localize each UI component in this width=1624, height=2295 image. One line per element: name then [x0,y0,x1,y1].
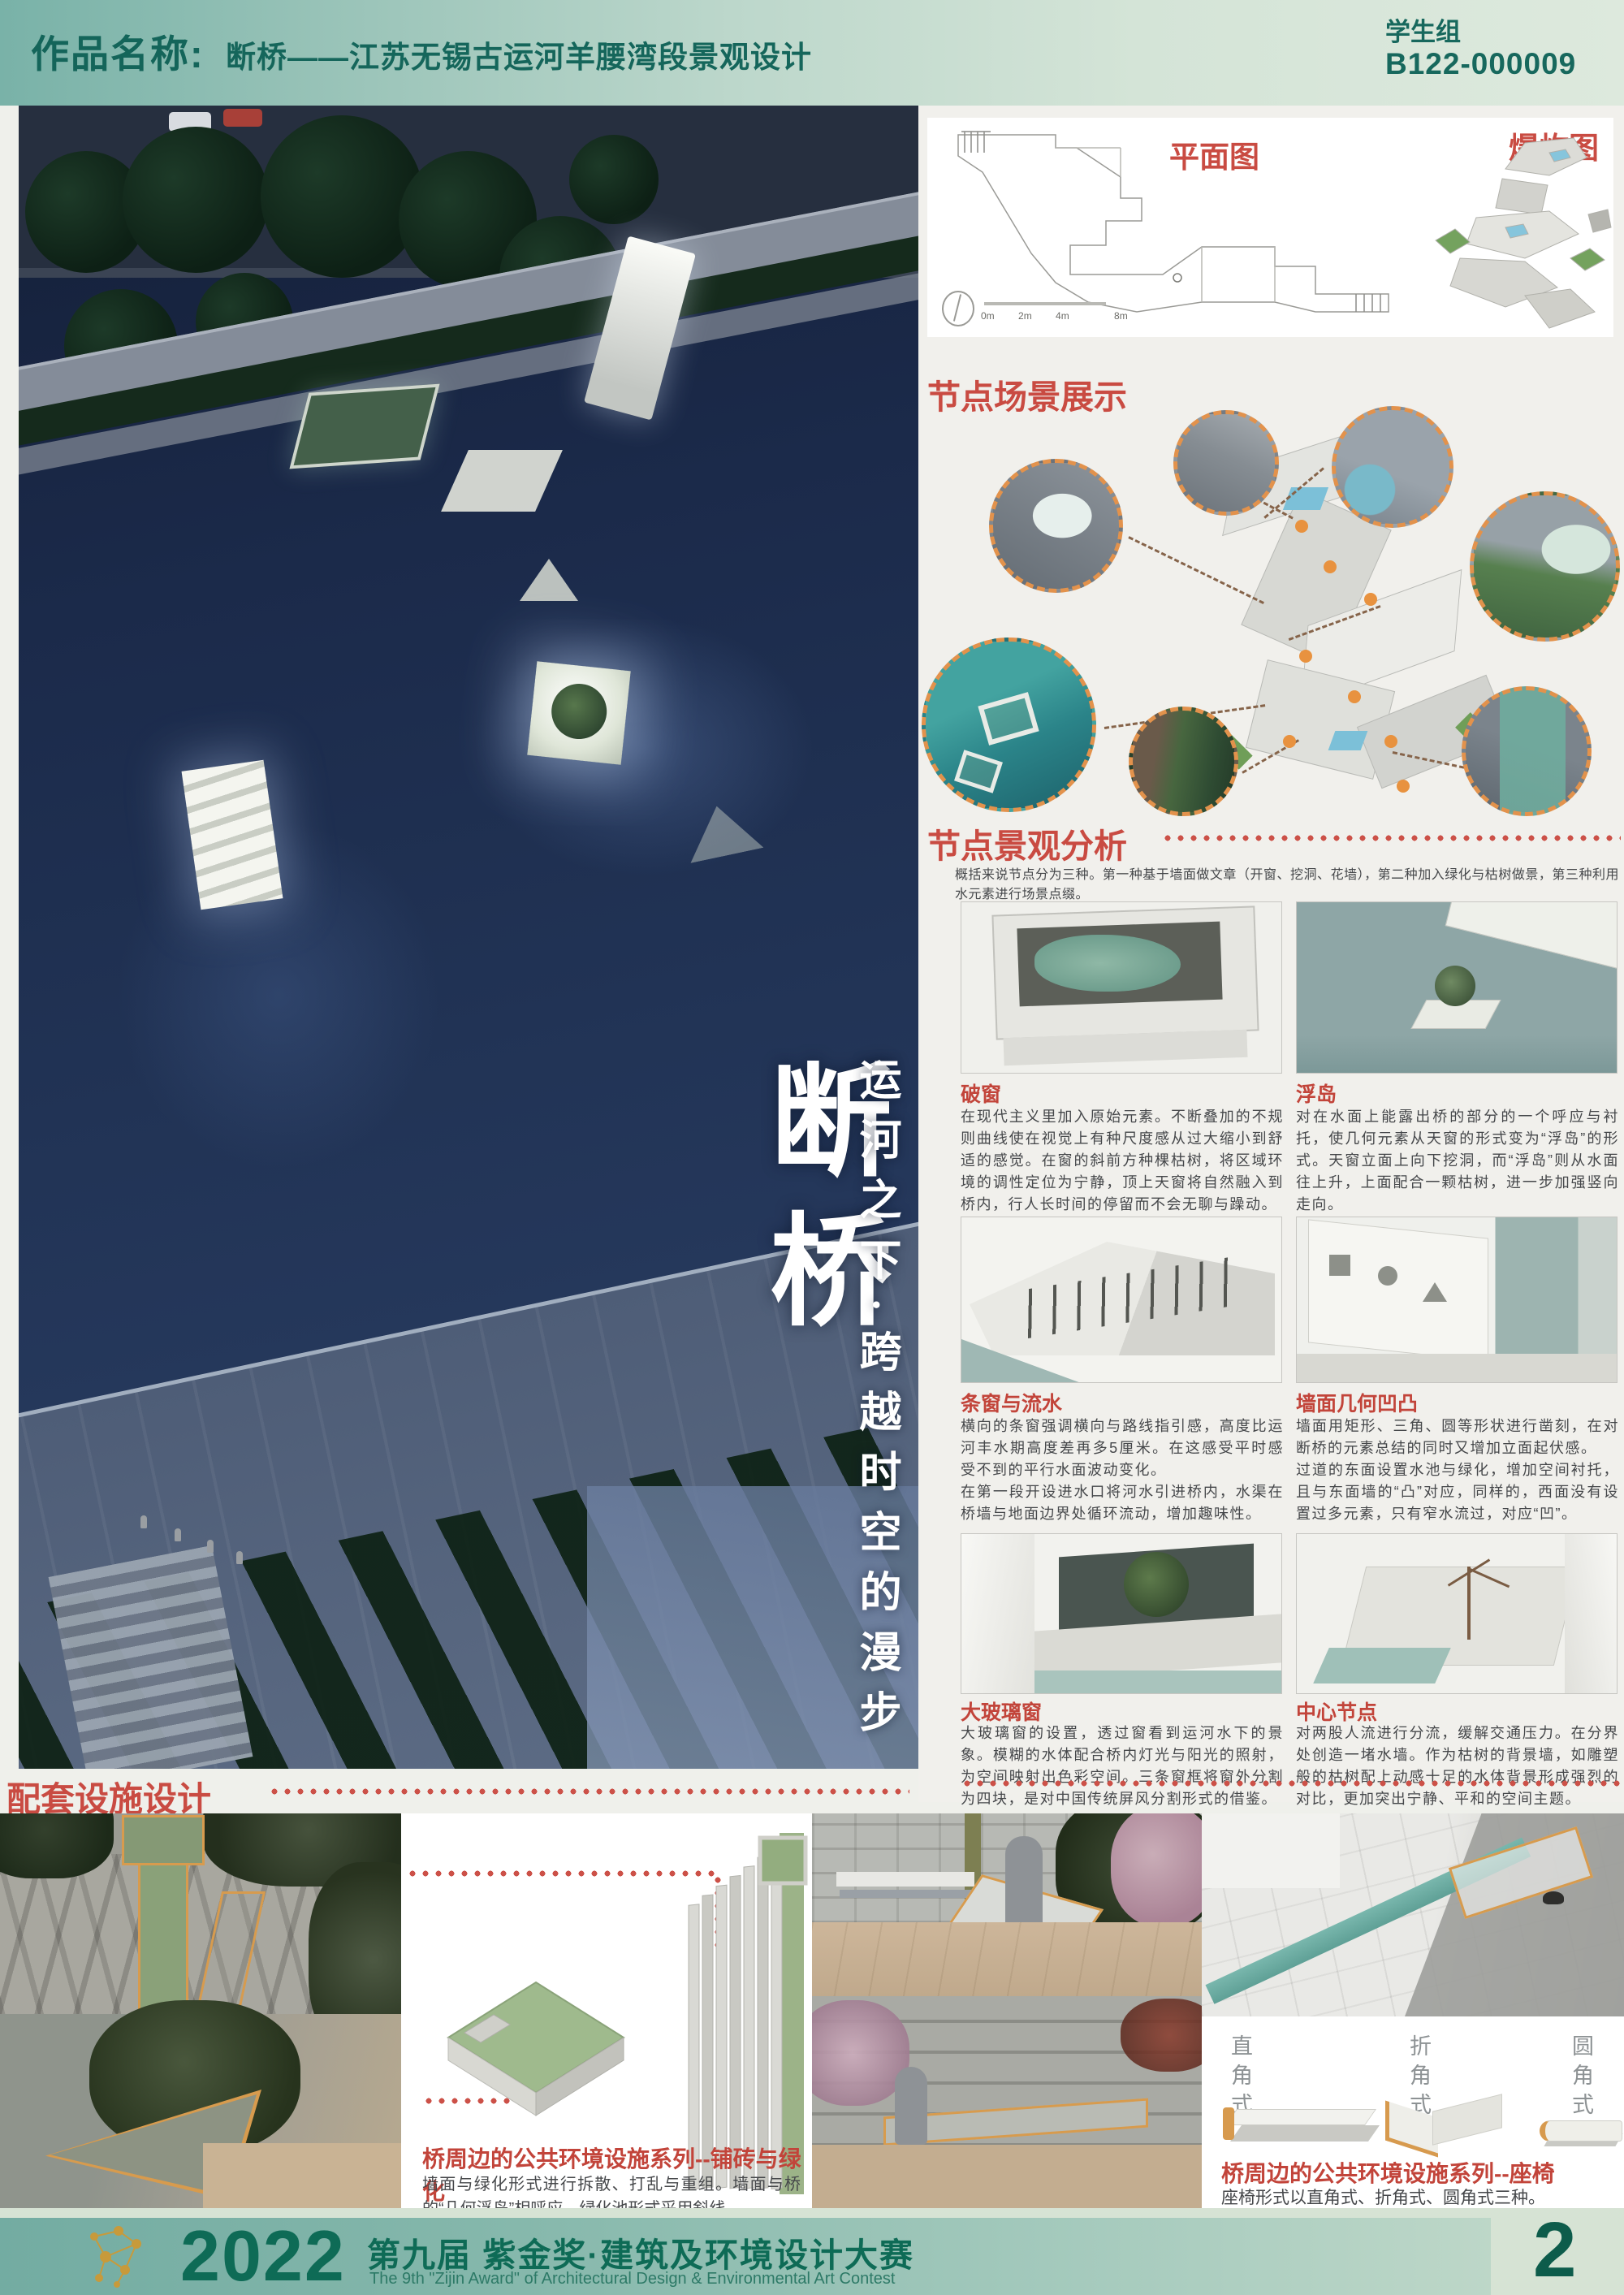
node-marker [1397,780,1410,793]
window-water [1034,935,1181,992]
pedestrian [175,1528,181,1541]
deck-floor [812,2145,1202,2208]
card-title-strip-window: 条窗与流水 [961,1388,1062,1417]
exploded-axon-drawing [1427,136,1614,335]
tree-canopy [569,135,659,224]
card-title-central-node: 中心节点 [1296,1696,1377,1726]
pool [1313,1648,1451,1683]
entry-number: B122-000009 [1385,47,1576,81]
card-title-broken-window: 破窗 [961,1078,1001,1108]
walkway-floor [1297,1354,1618,1383]
water-sheen [473,617,814,877]
analysis-image-relief-wall [1296,1217,1618,1383]
footer-contest-title-cn: 第九届 紫金奖·建筑及环境设计大赛 [367,2228,914,2276]
scene-vignette-glass-wall [1462,686,1592,816]
node-marker [1295,520,1308,533]
analysis-intro: 概括来说节点分为三种。第一种基于墙面做文章（开窗、挖洞、花墙），第二种加入绿化与… [955,866,1619,905]
tree-canopy [123,127,269,273]
hero-night-render: 断桥 运河之下·跨越时空的漫步 [19,106,918,1769]
bench-type-label-rounded: 圆角式 [1566,2034,1597,2122]
bench-slab [1225,2109,1376,2125]
plan-drawing [934,123,1437,326]
node-marker [1364,593,1377,606]
bench-types-panel: 直角式 折角式 圆角式 桥周边的公共环境设施系列--座椅 座椅形式以直角式、折角… [1202,2016,1624,2208]
footer-contest-title-en: The 9th "Zijin Award" of Architectural D… [369,2270,895,2289]
hero-vertical-subtitle: 运河之下·跨越时空的漫步 [845,1057,906,1750]
node-marker [1299,650,1312,663]
connector-dash [1128,536,1264,604]
person-silhouette [1005,1836,1043,1934]
scene-vignette-green-courtyard [1470,491,1620,642]
node-marker [1384,735,1397,748]
bench-caption-title: 桥周边的公共环境设施系列--座椅 [1221,2156,1555,2189]
relief-wall-face [1308,1219,1488,1361]
scale-tick: 0m [981,310,995,322]
car [223,109,262,127]
pool-strip [1034,1670,1282,1694]
white-bench [836,1872,974,1887]
scale-tick: 8m [1114,310,1128,322]
island-tree [1435,966,1475,1006]
scene-vignette-gray-interior [1173,410,1279,516]
bench-wing-left [1385,2100,1438,2157]
compass-needle [953,294,961,321]
scale-tick: 4m [1056,310,1069,322]
photo-water-channel [1202,1813,1624,2016]
tree-canopy [261,115,423,278]
green-pocket [122,1815,205,1865]
courtyard-tree [1124,1552,1189,1617]
deck-floor [812,1922,1202,1996]
card-title-floating-island: 浮岛 [1296,1078,1337,1108]
red-leaf-branch [1121,1999,1202,2072]
analysis-dotted-rule [1161,833,1621,843]
scale-bar [984,302,1106,305]
wood-floor [203,2143,401,2208]
relief-circle [1378,1266,1397,1286]
card-title-relief-wall: 墙面几何凹凸 [1296,1388,1418,1417]
card-text-central-node: 对两股人流进行分流，缓解交通压力。在分界处创造一堵水墙。作为枯树的背景墙，如雕塑… [1296,1722,1619,1810]
card-title-glass-window: 大玻璃窗 [961,1696,1042,1726]
white-wall [1565,1534,1618,1694]
scene-vignette-floating-islands [922,637,1096,812]
bench-shadow [1230,2125,1380,2142]
bare-tree-trunk [1467,1567,1471,1640]
poster-canvas: 作品名称: 断桥——江苏无锡古运河羊腰湾段景观设计 学生组 B122-00000… [0,0,1624,2295]
skylight-dim-triangle [680,798,764,863]
bench-diagram-folded [1385,2098,1507,2146]
node-marker [1283,735,1296,748]
skylight-trapezoid [441,450,563,512]
magnolia-blossoms [1111,1813,1202,1927]
scale-labels: 0m 2m 4m 8m [981,310,1128,322]
pedestrian [236,1551,243,1564]
analysis-image-broken-window [961,901,1282,1074]
floating-planter [978,692,1039,746]
card-text-floating-island: 对在水面上能露出桥的部分的一个呼应与衬托，使几何元素从天窗的形式变为“浮岛”的形… [1296,1106,1619,1216]
card-text-glass-window: 大玻璃窗的设置，透过窗看到运河水下的景象。模糊的水体配合桥内灯光与阳光的照射，为… [961,1722,1284,1810]
analysis-image-central-node [1296,1533,1618,1694]
work-name-label: 作品名称: [31,23,205,79]
scene-vignette-green-wall [1129,707,1238,816]
zijin-award-logo-icon [78,2224,159,2289]
footer-year: 2022 [180,2215,346,2295]
courtyard-tree [549,681,610,742]
analysis-image-floating-island [1296,901,1618,1074]
card-text-strip-window: 横向的条窗强调横向与路线指引感，高度比运河丰水期高度差再多5厘米。在这感受平时感… [961,1415,1284,1525]
analysis-bottom-dotted-rule [961,1779,1620,1788]
bench-diagram-right-angle [1223,2104,1377,2145]
photo-paving-wall [0,1813,401,2208]
analysis-image-glass-window [961,1533,1282,1694]
relief-square [1329,1255,1350,1276]
scene-vignette-window-interior [989,459,1123,593]
scale-tick: 2m [1018,310,1032,322]
white-wall [961,1534,1034,1694]
skylight-stairwell [182,760,283,910]
analysis-image-strip-window [961,1217,1282,1383]
page-number: 2 [1533,2206,1576,2295]
bench-wing-right [1432,2094,1502,2145]
scene-vignette-pool-deck [1332,406,1453,528]
facilities-dotted-rule [268,1787,909,1796]
header-bar: 作品名称: 断桥——江苏无锡古运河羊腰湾段景观设计 学生组 B122-00000… [0,0,1624,106]
pedestrian [207,1540,214,1553]
skylight-green-planter [289,384,439,469]
photo-bench-scenes [812,1813,1202,2208]
paving-diagram-panel: 桥周边的公共环境设施系列--铺砖与绿化 墙面与绿化形式进行拆散、打乱与重组。墙面… [401,1813,812,2208]
pedestrian [140,1515,147,1528]
work-title: 断桥——江苏无锡古运河羊腰湾段景观设计 [226,32,812,76]
footer-teal-bar: 2022 第九届 紫金奖·建筑及环境设计大赛 The 9th "Zijin Aw… [0,2218,1491,2295]
bench-slab-rounded [1540,2120,1622,2142]
skylight-triangle [520,559,578,601]
bench-diagram-rounded [1540,2120,1621,2150]
scene-display-area [918,406,1624,816]
entry-group: 学生组 [1385,11,1461,48]
person-silhouette [895,2067,927,2145]
cat-silhouette [1543,1891,1564,1904]
node-marker [1324,560,1337,573]
paving-connector-h1 [406,1869,716,1878]
node-marker [1348,690,1361,703]
analysis-section-title: 节点景观分析 [927,819,1127,867]
bench-orange-cap [1223,2107,1234,2140]
green-tile-diagram [440,1976,631,2126]
card-text-broken-window: 在现代主义里加入原始元素。不断叠加的不规则曲线使在视觉上有种尺度感从过大缩小到舒… [961,1106,1284,1216]
compass-icon [942,291,974,326]
white-wall-corner [1202,1813,1340,1888]
floating-planter [954,750,1003,793]
skylight-bright-square [527,661,630,764]
card-text-relief-wall: 墙面用矩形、三角、圆等形状进行凿刻，在对断桥的元素总结的同时又增加立面起伏感。 … [1296,1415,1619,1525]
bridge-slab [1445,901,1618,977]
